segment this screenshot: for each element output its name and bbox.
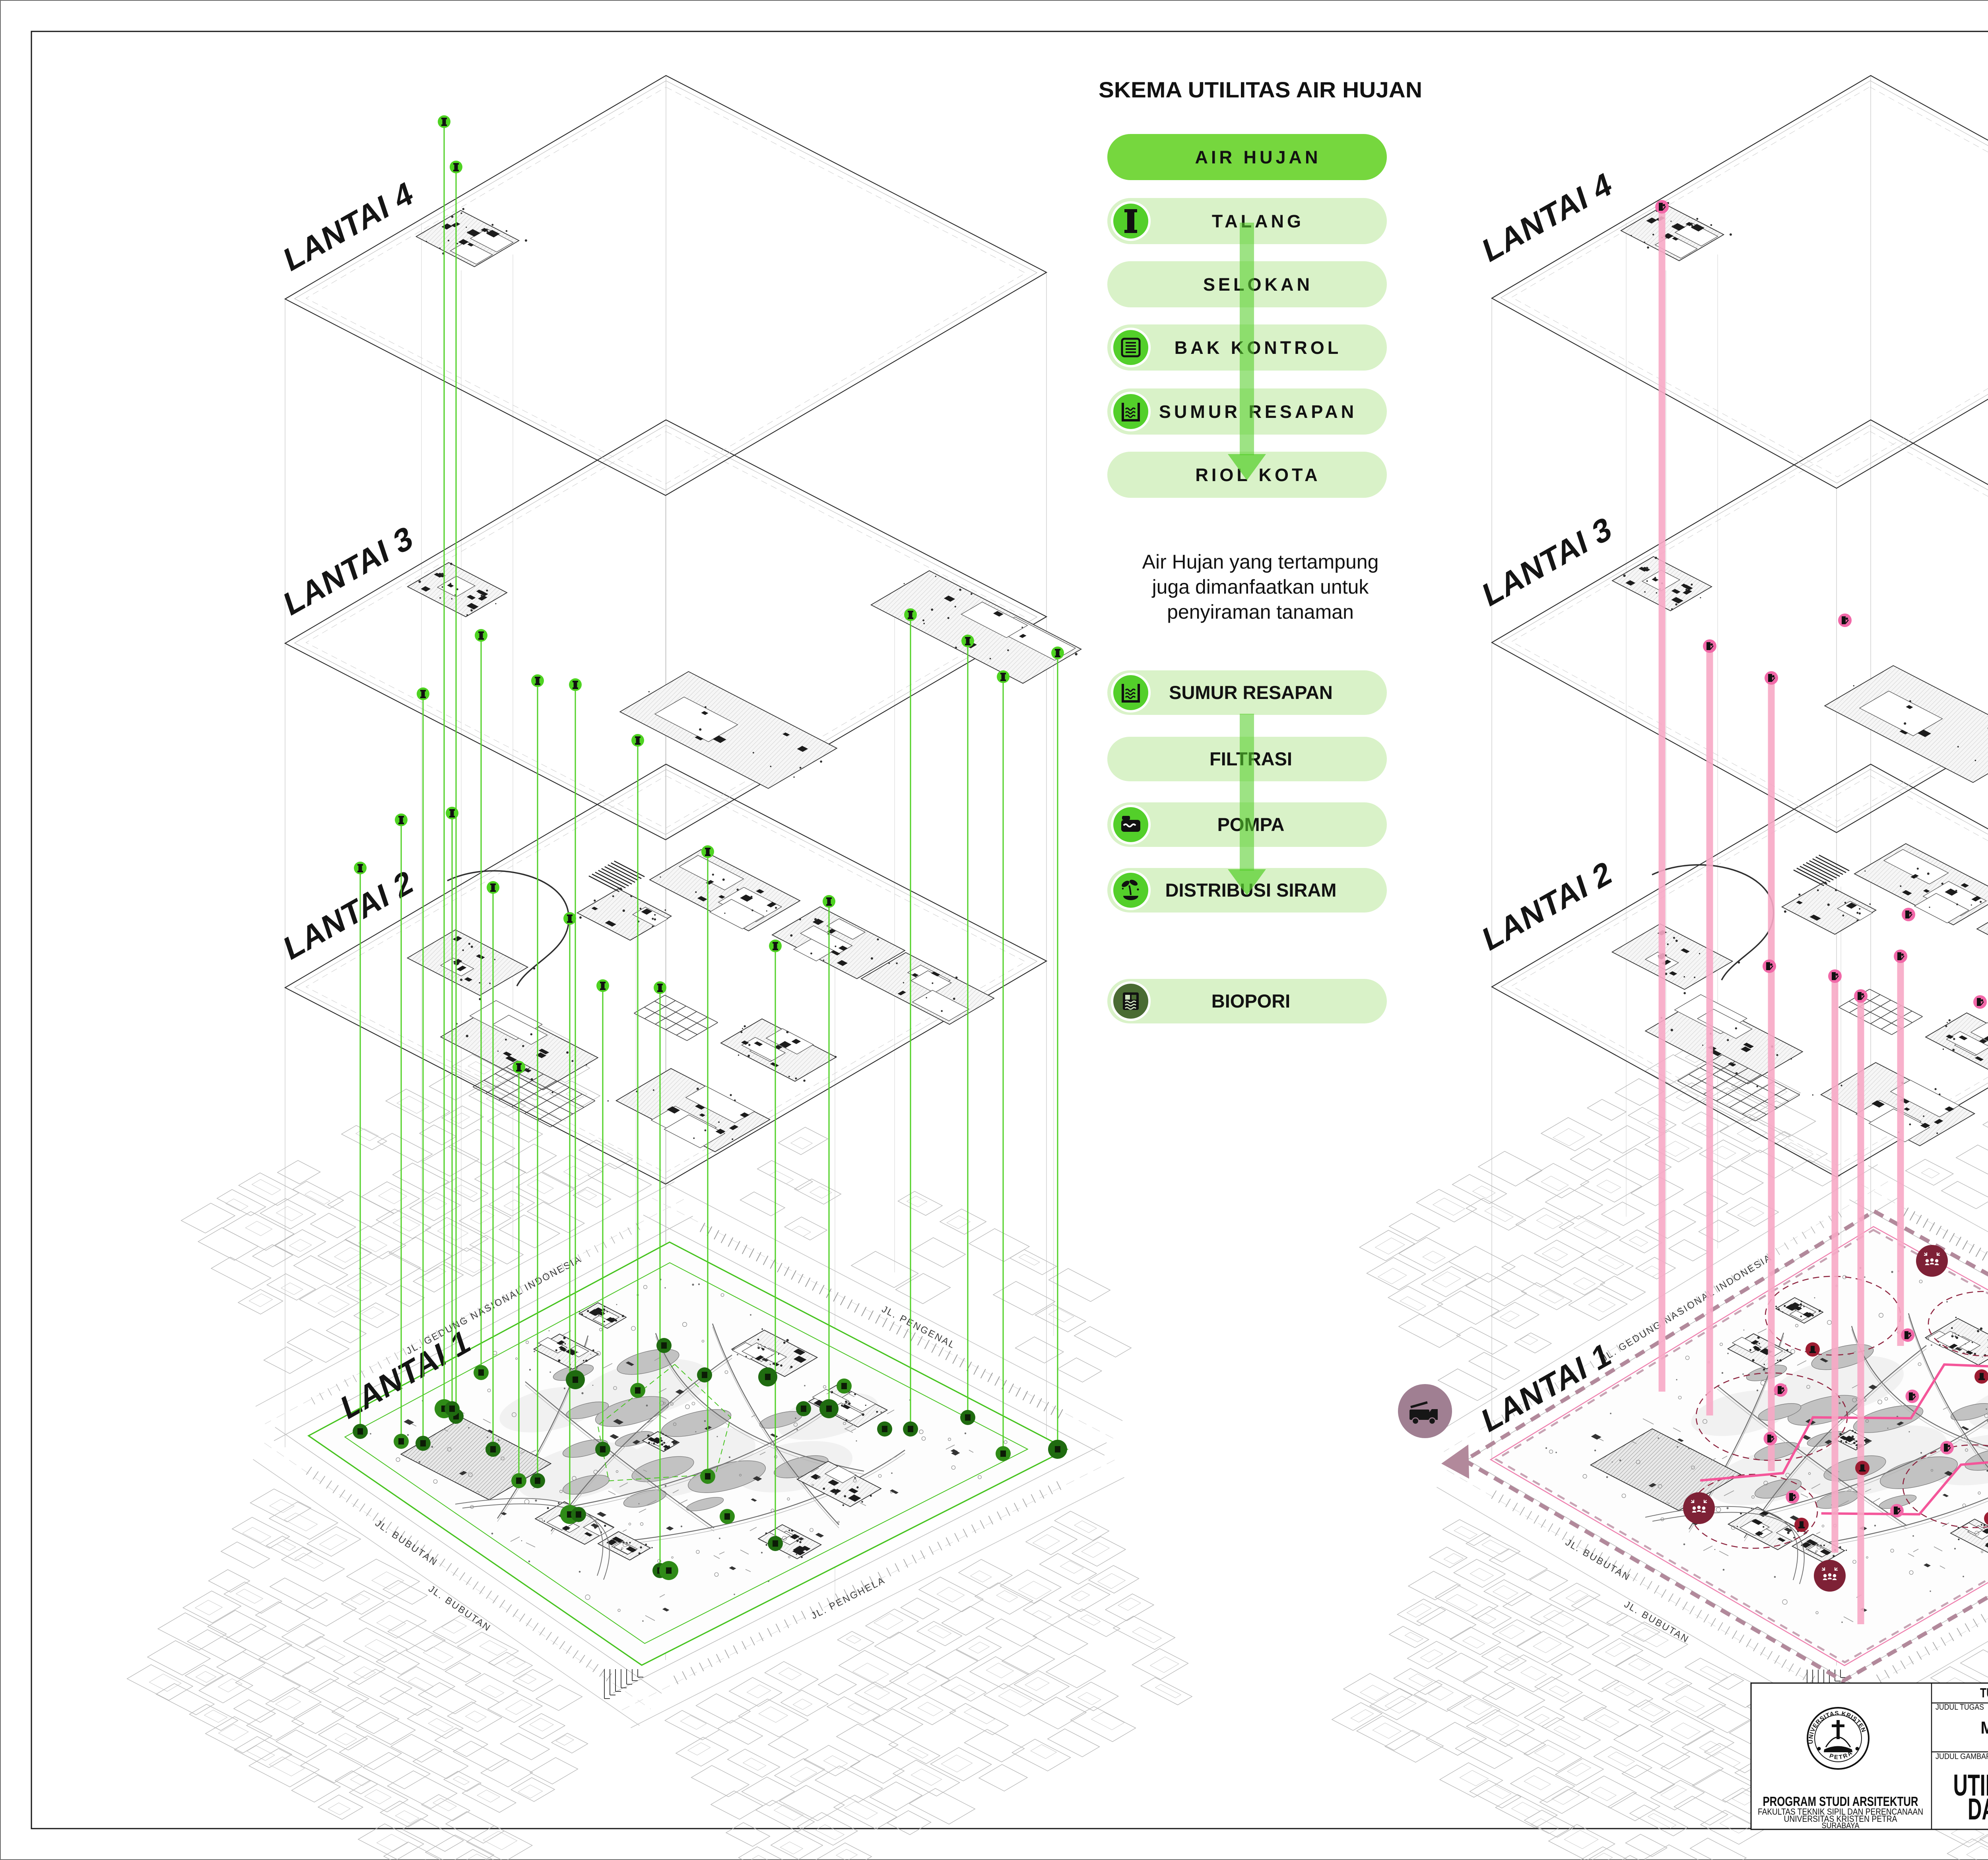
svg-text:penyiraman tanaman: penyiraman tanaman (1167, 601, 1354, 623)
svg-text:BAK KONTROL: BAK KONTROL (1175, 338, 1342, 358)
svg-text:JUDUL GAMBAR: JUDUL GAMBAR (1936, 1752, 1988, 1761)
svg-text:TALANG: TALANG (1212, 211, 1304, 231)
svg-text:RIOL KOTA: RIOL KOTA (1195, 465, 1320, 485)
svg-text:SUMUR RESAPAN: SUMUR RESAPAN (1159, 402, 1357, 422)
svg-text:BIOPORI: BIOPORI (1211, 990, 1290, 1012)
svg-text:AIR HUJAN: AIR HUJAN (1195, 147, 1321, 167)
svg-text:juga dimanfaatkan untuk: juga dimanfaatkan untuk (1151, 576, 1369, 598)
svg-text:MUSEUM EKOLOGI HUTAN DI: MUSEUM EKOLOGI HUTAN DI (1981, 1718, 1988, 1738)
svg-text:TUGAS AKHIR - SEMESTER GENAP 2: TUGAS AKHIR - SEMESTER GENAP 2023/2024 (1980, 1685, 1988, 1700)
svg-text:SURABAYA: SURABAYA (1822, 1821, 1860, 1830)
svg-text:Air Hujan yang tertampung: Air Hujan yang tertampung (1142, 551, 1379, 573)
svg-text:SELOKAN: SELOKAN (1203, 274, 1313, 295)
svg-text:DAN KEBAKARAN: DAN KEBAKARAN (1968, 1792, 1988, 1826)
svg-text:SUMUR RESAPAN: SUMUR RESAPAN (1169, 682, 1333, 703)
svg-text:JUDUL TUGAS: JUDUL TUGAS (1936, 1703, 1984, 1712)
svg-text:SKEMA UTILITAS AIR HUJAN: SKEMA UTILITAS AIR HUJAN (1099, 77, 1422, 102)
